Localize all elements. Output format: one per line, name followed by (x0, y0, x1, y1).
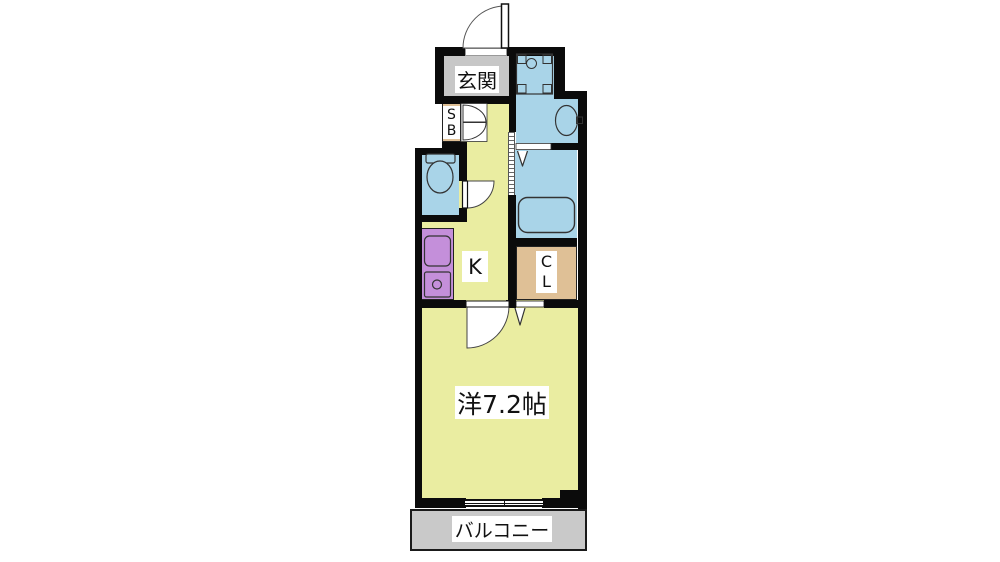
room-washroom (516, 99, 578, 143)
wall (415, 498, 466, 508)
entrance-threshold (465, 48, 507, 56)
kitchen-label: K (462, 251, 488, 282)
room-washer-space (516, 56, 554, 99)
room-bathroom (514, 150, 577, 238)
wall (506, 300, 516, 308)
closet-label: C L (536, 251, 557, 293)
pillar (560, 490, 580, 508)
wall (554, 91, 587, 99)
wall (544, 300, 578, 308)
shoe-box-label-line2: B (447, 123, 457, 139)
wall (415, 148, 467, 155)
wall (542, 498, 562, 508)
western-room-label: 洋7.2帖 (455, 386, 549, 419)
floor-plan: 玄関 S B K C L 洋7.2帖 バルコニー (0, 0, 1000, 562)
wall (435, 96, 513, 104)
wall (509, 47, 516, 132)
closet-label-line2: L (541, 272, 552, 292)
shoe-box-label: S B (443, 106, 460, 139)
kitchen-counter (421, 228, 454, 300)
wall (415, 300, 466, 308)
washroom-opening (508, 132, 515, 195)
wall (415, 215, 460, 222)
window-lock (504, 501, 505, 505)
wall (459, 155, 467, 181)
room-toilet (422, 155, 459, 215)
wall (578, 99, 587, 509)
wall (508, 246, 516, 308)
wall (550, 143, 578, 150)
wall (415, 148, 422, 303)
entrance-door-icon (463, 4, 509, 48)
balcony-label: バルコニー (452, 516, 552, 542)
balcony-window (465, 499, 543, 507)
genkan-label: 玄関 (455, 66, 499, 93)
wall (459, 208, 467, 222)
shoe-box-label-line1: S (447, 107, 457, 123)
wall (415, 300, 422, 508)
wall (508, 238, 577, 246)
closet-label-line1: C (541, 252, 552, 272)
